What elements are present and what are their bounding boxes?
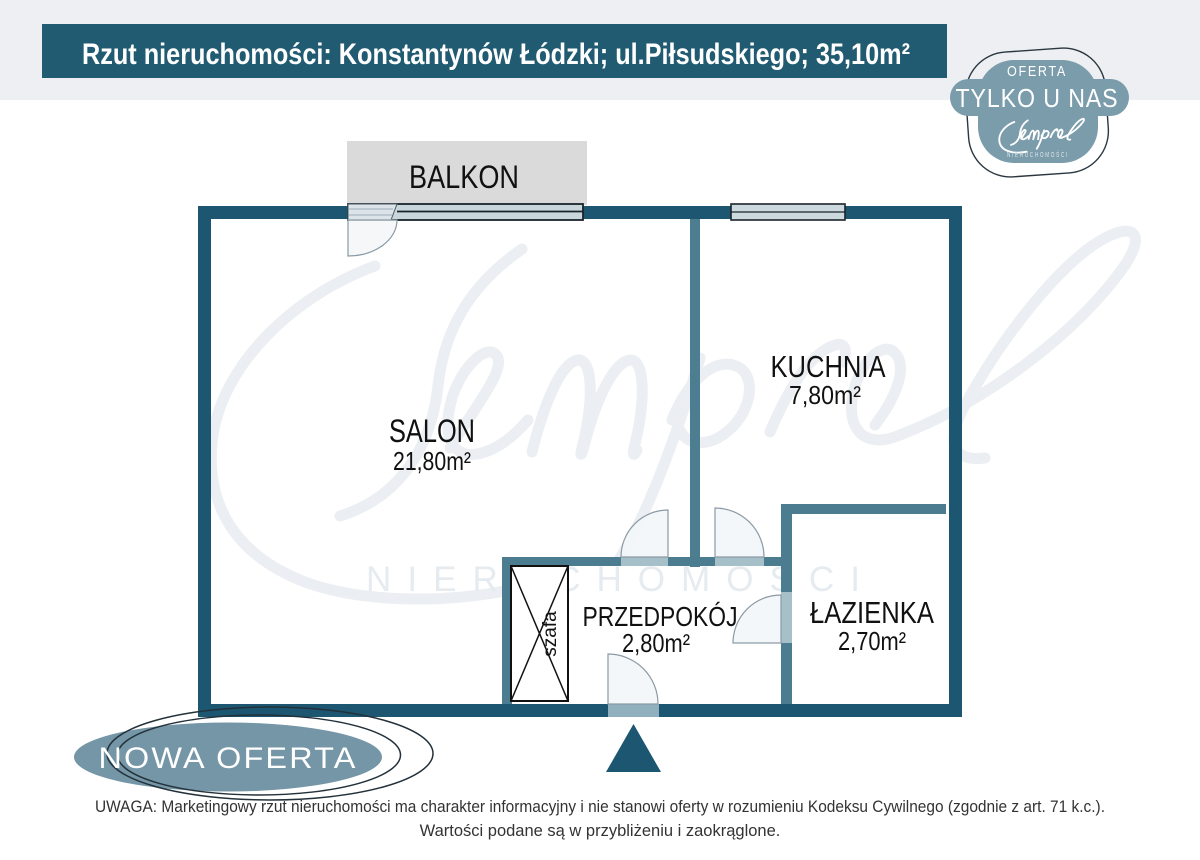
svg-text:ŁAZIENKA: ŁAZIENKA (810, 595, 934, 630)
svg-text:21,80m²: 21,80m² (393, 446, 471, 476)
svg-text:TYLKO U NAS: TYLKO U NAS (956, 83, 1119, 113)
svg-text:2,70m²: 2,70m² (838, 626, 906, 656)
svg-text:OFERTA: OFERTA (1007, 63, 1067, 80)
svg-text:SALON: SALON (389, 413, 475, 449)
svg-text:BALKON: BALKON (409, 159, 519, 195)
svg-text:NOWA OFERTA: NOWA OFERTA (99, 742, 358, 775)
svg-text:2,80m²: 2,80m² (622, 628, 690, 658)
svg-text:szafa: szafa (540, 611, 561, 657)
svg-text:7,80m²: 7,80m² (789, 380, 861, 410)
svg-text:KUCHNIA: KUCHNIA (771, 349, 886, 384)
svg-text:Rzut nieruchomości: Konstantyn: Rzut nieruchomości: Konstantynów Łódzki;… (82, 38, 910, 71)
svg-text:NIERUCHOMOŚCI: NIERUCHOMOŚCI (1007, 150, 1069, 159)
svg-text:Wartości podane są w przybliże: Wartości podane są w przybliżeniu i zaok… (420, 822, 781, 840)
svg-text:UWAGA: Marketingowy rzut nieru: UWAGA: Marketingowy rzut nieruchomości m… (95, 798, 1105, 816)
